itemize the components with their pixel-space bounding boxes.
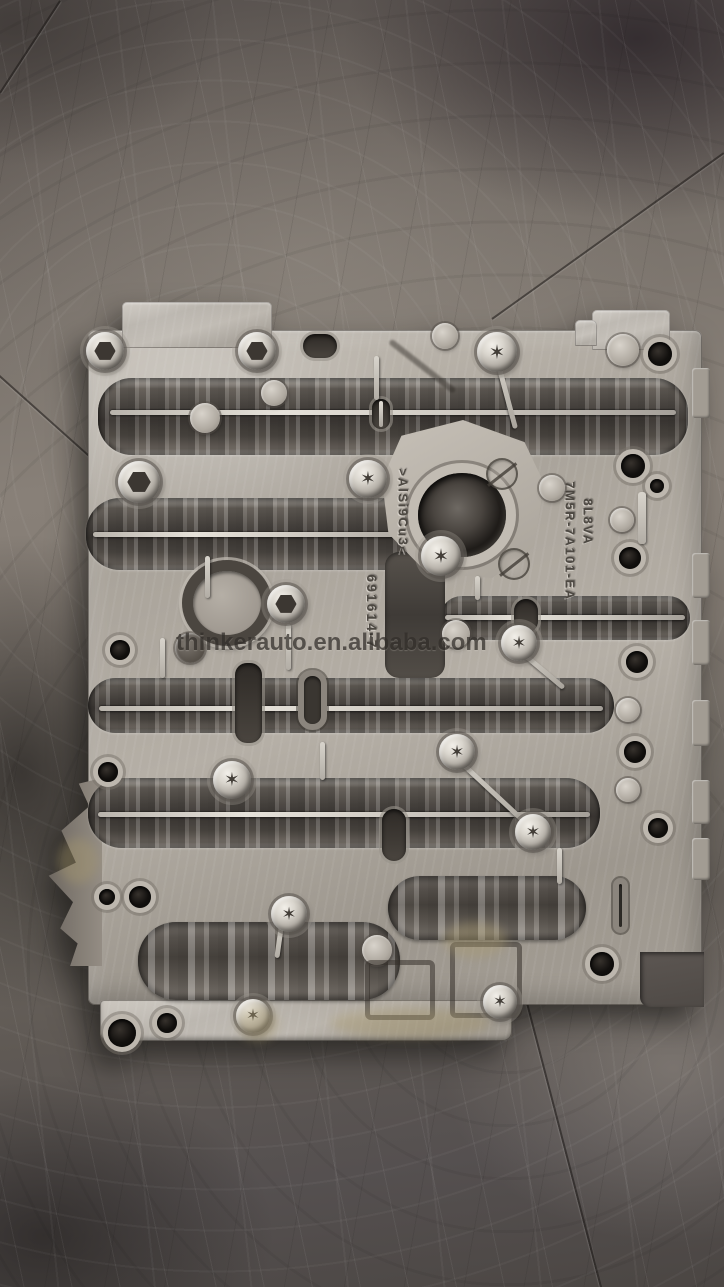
- bolt-hole: [619, 547, 641, 569]
- slot-opening: [613, 878, 628, 933]
- valve-channel-band: [88, 678, 614, 733]
- slot-opening: [303, 334, 337, 358]
- valve-pin: [379, 401, 383, 426]
- right-edge-tab: [692, 368, 710, 418]
- bolt-hole: [650, 479, 664, 493]
- bolt-hole: [157, 1013, 177, 1033]
- torx-screw-icon: [439, 734, 475, 770]
- boss: [616, 698, 640, 722]
- valve-channel-band: [98, 378, 688, 455]
- oil-stain: [443, 922, 507, 958]
- oil-stain: [330, 1008, 490, 1038]
- valve-rod: [320, 742, 325, 780]
- bolt-hole: [621, 454, 645, 478]
- bolt-hole: [98, 762, 118, 782]
- boss: [190, 403, 220, 433]
- mounting-tab: [575, 320, 597, 346]
- slot-opening: [382, 809, 406, 861]
- valve-rod: [160, 638, 165, 678]
- boss: [261, 380, 287, 406]
- bolt-hole: [626, 651, 648, 673]
- hex-screw-icon: [238, 332, 276, 370]
- valve-rod: [374, 356, 379, 400]
- corner-relief: [640, 952, 704, 1007]
- photo-scene: >AlSi9Cu3< 8L8VA 7M5R-7A101-EA 691614-7 …: [0, 0, 724, 1287]
- casting-code-marking: 8L8VA: [581, 499, 596, 546]
- torx-screw-icon: [213, 761, 251, 799]
- alloy-marking: >AlSi9Cu3<: [396, 468, 411, 555]
- right-edge-tab: [692, 838, 710, 880]
- bolt-hole: [590, 952, 614, 976]
- oil-stain: [58, 838, 98, 884]
- right-edge-tab: [692, 700, 710, 746]
- inspection-stamp-icon: [486, 458, 518, 490]
- slot-opening: [372, 399, 390, 429]
- hex-screw-icon: [86, 332, 124, 370]
- bolt-hole: [648, 342, 672, 366]
- boss: [616, 778, 640, 802]
- bolt-hole: [648, 818, 668, 838]
- torx-screw-icon: [477, 332, 517, 372]
- torx-screw-icon: [271, 896, 307, 932]
- slot-opening: [235, 663, 262, 743]
- torx-screw-icon: [501, 625, 537, 661]
- bolt-hole: [110, 640, 130, 660]
- inspection-stamp-icon: [498, 548, 530, 580]
- valve-rod: [475, 576, 480, 600]
- torx-screw-icon: [483, 985, 517, 1019]
- boss: [539, 475, 565, 501]
- right-edge-tab: [692, 620, 710, 665]
- bolt-hole: [624, 741, 646, 763]
- valve-rod: [205, 556, 210, 598]
- valve-body-casting: >AlSi9Cu3< 8L8VA 7M5R-7A101-EA 691614-7: [44, 298, 712, 1058]
- right-edge-tab: [692, 780, 710, 824]
- valve-rod: [638, 492, 646, 544]
- torx-screw-icon: [349, 460, 387, 498]
- part-number-marking: 7M5R-7A101-EA: [563, 481, 578, 600]
- hex-screw-icon: [118, 461, 160, 503]
- valve-spool: [138, 922, 400, 1000]
- hex-screw-icon: [267, 585, 305, 623]
- bolt-hole: [129, 886, 151, 908]
- torx-screw-icon: [515, 814, 551, 850]
- oil-stain: [238, 1005, 278, 1041]
- bolt-hole: [108, 1019, 136, 1047]
- boss: [432, 323, 458, 349]
- valve-rod: [557, 848, 562, 884]
- slot-opening: [298, 670, 327, 730]
- watermark-text: thinkerauto.en.alibaba.com: [176, 629, 487, 657]
- right-edge-tab: [692, 553, 710, 598]
- boss: [607, 334, 639, 366]
- bolt-hole: [99, 889, 115, 905]
- boss: [610, 508, 634, 532]
- torx-screw-icon: [421, 536, 461, 576]
